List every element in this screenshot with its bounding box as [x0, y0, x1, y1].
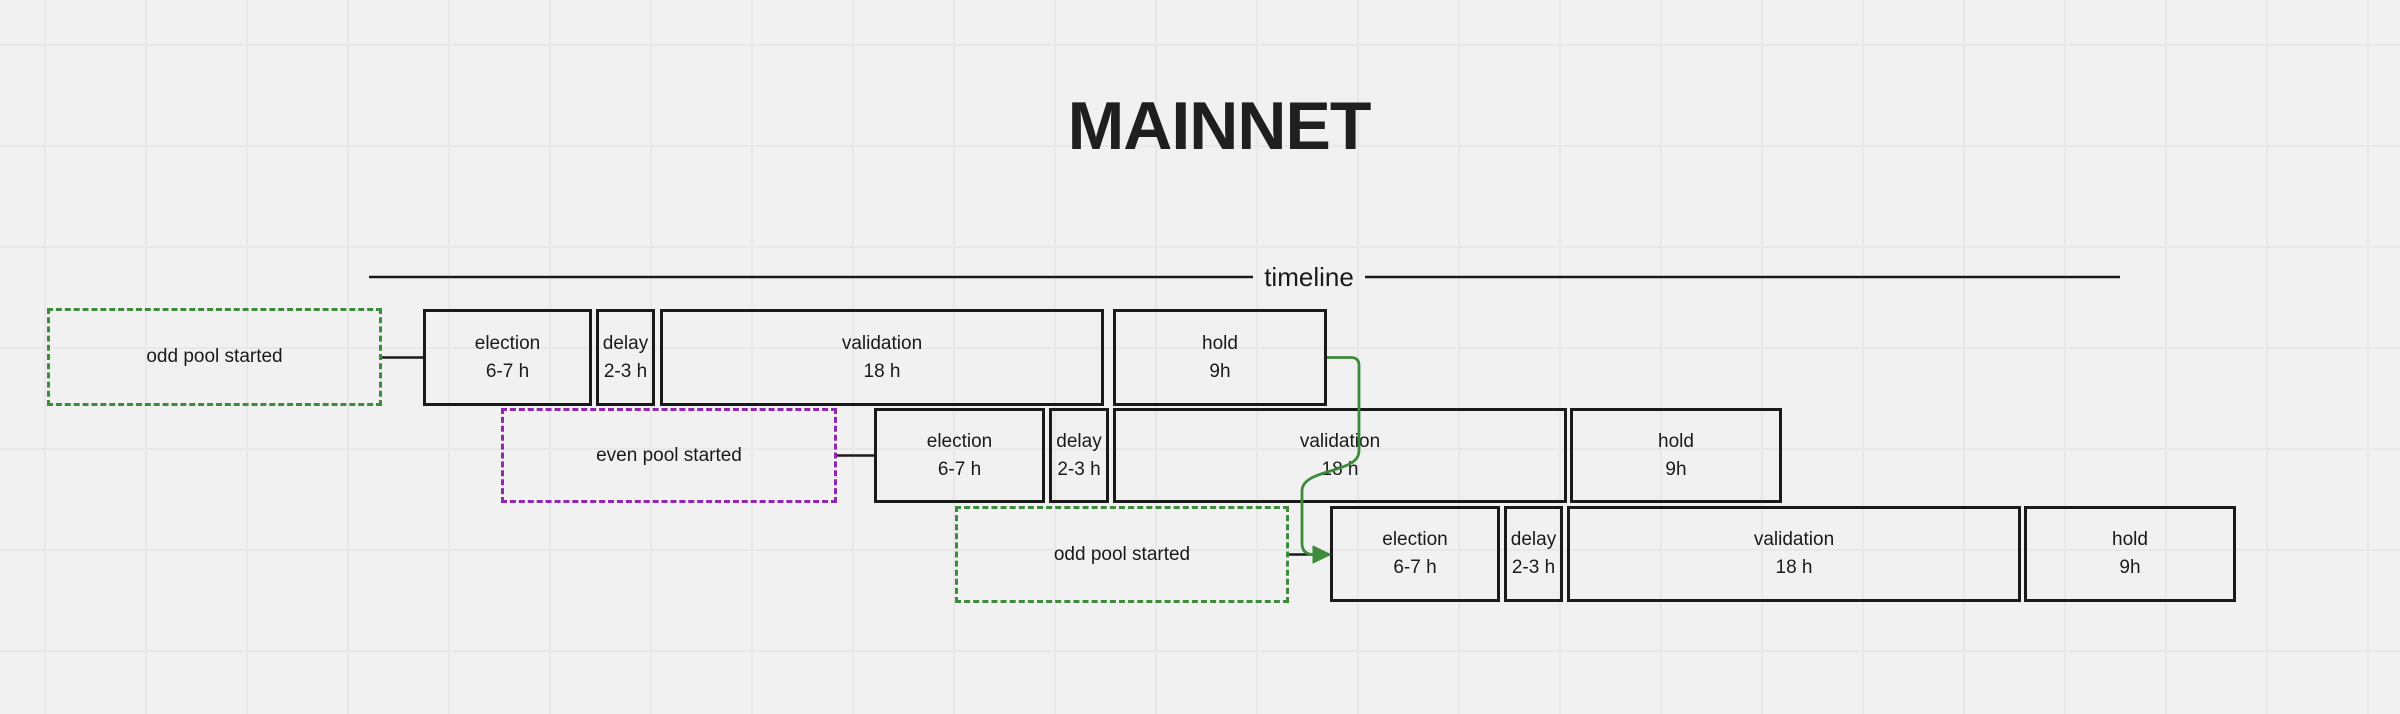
phase-duration: 2-3 h: [604, 358, 647, 386]
phase-name: validation: [1754, 526, 1834, 554]
phase-box-hold-row1: hold 9h: [1113, 309, 1327, 406]
phase-duration: 9h: [1665, 456, 1686, 484]
phase-box-delay-row2: delay 2-3 h: [1049, 408, 1109, 503]
phase-name: hold: [1202, 330, 1238, 358]
phase-box-hold-row2: hold 9h: [1570, 408, 1782, 503]
phase-name: validation: [1300, 428, 1380, 456]
phase-name: election: [475, 330, 541, 358]
cycle-arrow-head: [1313, 546, 1331, 563]
phase-duration: 2-3 h: [1512, 554, 1555, 582]
start-label: odd pool started: [1054, 544, 1190, 566]
phase-box-election-row2: election 6-7 h: [874, 408, 1045, 503]
phase-name: delay: [1056, 428, 1101, 456]
phase-box-hold-row3: hold 9h: [2024, 506, 2236, 602]
phase-name: hold: [1658, 428, 1694, 456]
phase-duration: 6-7 h: [1393, 554, 1436, 582]
start-label: even pool started: [596, 445, 742, 467]
timeline-label: timeline: [1253, 261, 1365, 293]
phase-box-validation-row3: validation 18 h: [1567, 506, 2021, 602]
phase-duration: 6-7 h: [486, 358, 529, 386]
page-title: MAINNET: [1019, 90, 1419, 162]
phase-name: delay: [603, 330, 648, 358]
phase-duration: 9h: [2119, 554, 2140, 582]
odd-pool-started-box-row1: odd pool started: [47, 308, 382, 406]
phase-duration: 18 h: [1776, 554, 1813, 582]
phase-name: election: [1382, 526, 1448, 554]
phase-duration: 6-7 h: [938, 456, 981, 484]
phase-box-validation-row2: validation 18 h: [1113, 408, 1567, 503]
phase-name: hold: [2112, 526, 2148, 554]
diagram-canvas: MAINNET timeline odd pool started electi…: [0, 0, 2400, 714]
phase-duration: 18 h: [1322, 456, 1359, 484]
phase-box-election-row1: election 6-7 h: [423, 309, 592, 406]
start-label: odd pool started: [146, 346, 282, 368]
phase-box-delay-row3: delay 2-3 h: [1504, 506, 1563, 602]
phase-duration: 9h: [1209, 358, 1230, 386]
odd-pool-started-box-row3: odd pool started: [955, 506, 1289, 603]
phase-box-delay-row1: delay 2-3 h: [596, 309, 655, 406]
phase-duration: 2-3 h: [1057, 456, 1100, 484]
phase-box-election-row3: election 6-7 h: [1330, 506, 1500, 602]
phase-name: delay: [1511, 526, 1556, 554]
phase-name: election: [927, 428, 993, 456]
phase-box-validation-row1: validation 18 h: [660, 309, 1104, 406]
even-pool-started-box-row2: even pool started: [501, 408, 837, 503]
phase-name: validation: [842, 330, 922, 358]
phase-duration: 18 h: [864, 358, 901, 386]
